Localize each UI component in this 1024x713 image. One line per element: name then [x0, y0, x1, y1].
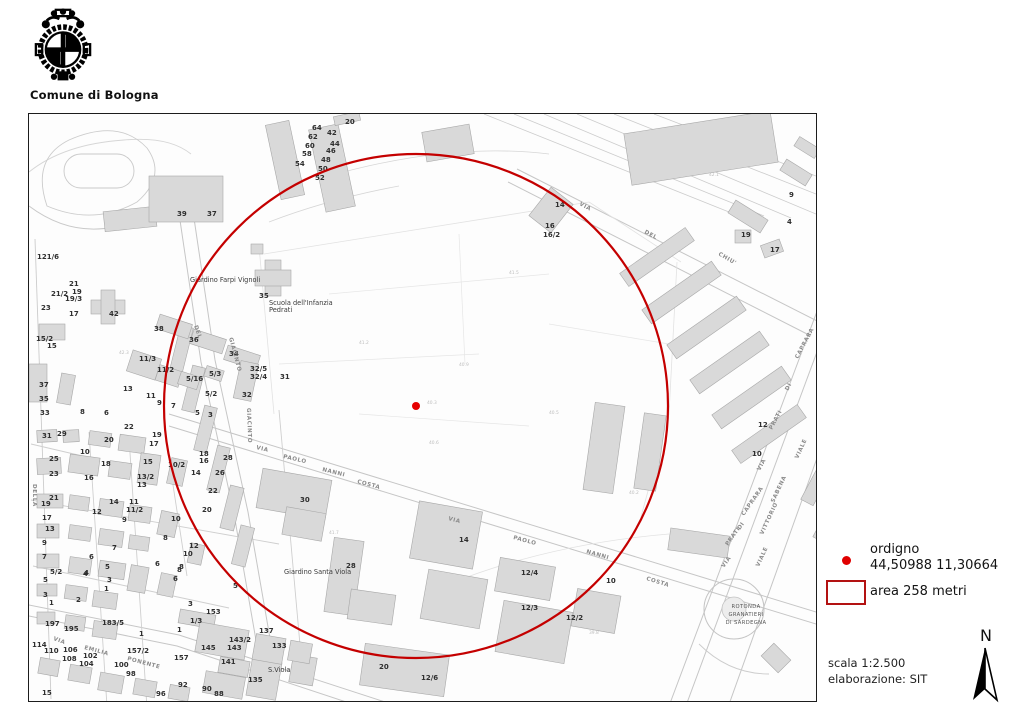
- map-label: 19: [41, 500, 51, 508]
- map-label: 10: [606, 577, 616, 585]
- map-label: 41.7: [329, 530, 339, 536]
- elaboration-text: elaborazione: SIT: [828, 671, 927, 687]
- scale-block: scala 1:2.500 elaborazione: SIT: [828, 655, 927, 687]
- map-label: 58: [302, 150, 312, 158]
- map-label: 40.9: [459, 362, 469, 368]
- map-label: 1: [49, 599, 54, 607]
- legend-point-label: ordigno: [870, 542, 998, 558]
- map-label: 29: [57, 430, 67, 438]
- map-label: 18: [101, 460, 111, 468]
- map-label: Pedrati: [269, 306, 292, 314]
- map-label: 108: [62, 655, 77, 663]
- map-label: 5/3: [209, 370, 221, 378]
- map-label: 22: [124, 423, 134, 431]
- map-label: 31: [280, 373, 290, 381]
- map-label: 5: [195, 409, 200, 417]
- map-label: 12: [189, 542, 199, 550]
- map-label: 5/16: [186, 375, 203, 383]
- map-label: 12/6: [421, 674, 438, 682]
- map-label: 11/2: [126, 506, 143, 514]
- map-label: 16: [545, 222, 555, 230]
- map-label: 62: [308, 133, 318, 141]
- map-label: 10: [80, 448, 90, 456]
- map-label: 16: [84, 474, 94, 482]
- north-letter: N: [964, 628, 1008, 644]
- map-label: 90: [202, 685, 212, 693]
- map-label: 7: [171, 402, 176, 410]
- map-label: 110: [44, 647, 59, 655]
- map-label: 32/5: [250, 365, 267, 373]
- map-label: 5: [43, 576, 48, 584]
- map-label: 17: [149, 440, 159, 448]
- map-label: 135: [248, 676, 263, 684]
- map-label: 13/2: [137, 473, 154, 481]
- scale-text: scala 1:2.500: [828, 655, 927, 671]
- map-label: 14: [191, 469, 201, 477]
- map-label: 3: [188, 600, 193, 608]
- map-label: 41.2: [359, 340, 369, 346]
- map-label: 39: [177, 210, 187, 218]
- map-label: 5/2: [205, 390, 217, 398]
- map-label: 157: [174, 654, 189, 662]
- map-label: 31: [42, 432, 52, 440]
- map-label: 35: [259, 292, 269, 300]
- map-label: 20: [379, 663, 389, 671]
- map-label: 8: [163, 534, 168, 542]
- map-label: 33: [40, 409, 50, 417]
- map-label: 141: [221, 658, 236, 666]
- map-label: 10: [183, 550, 193, 558]
- map-label: 14: [459, 536, 469, 544]
- map-label: 16/2: [543, 231, 560, 239]
- map-label: S.Viola: [268, 666, 290, 674]
- map-label: 23: [49, 470, 59, 478]
- map-label: 1/3: [190, 617, 202, 625]
- map-label: 2: [76, 596, 81, 604]
- map-label: 100: [114, 661, 129, 669]
- map-label: 1: [177, 626, 182, 634]
- map-frame: 2064426244604658485450523937141616/29419…: [28, 113, 817, 702]
- map-label: Giardino Santa Viola: [284, 568, 351, 576]
- map-label: 12/3: [521, 604, 538, 612]
- map-label: 9: [122, 516, 127, 524]
- map-label: 157/2: [127, 647, 149, 655]
- legend-point-swatch-icon: [842, 556, 851, 565]
- map-label: 48: [321, 156, 331, 164]
- map-label: 11: [129, 498, 139, 506]
- legend-area-swatch-icon: [826, 580, 866, 605]
- legend-point-text: ordigno 44,50988 11,30664: [870, 542, 998, 574]
- map-label: 1: [139, 630, 144, 638]
- map-label: 14: [109, 498, 119, 506]
- map-label: 197: [45, 620, 60, 628]
- comune-di-bologna-crest-icon: [34, 8, 92, 84]
- map-label: 40.2: [629, 490, 639, 496]
- map-label: 13: [45, 525, 55, 533]
- map-label: 64: [312, 124, 322, 132]
- map-label: 98: [126, 670, 136, 678]
- map-label: 6: [89, 553, 94, 561]
- map-label: 38: [154, 325, 164, 333]
- map-label: 32: [242, 391, 252, 399]
- map-label: 13: [137, 481, 147, 489]
- map-label: 54: [295, 160, 305, 168]
- map-label: 46: [326, 147, 336, 155]
- ordnance-point: [412, 402, 420, 410]
- map-label: 3: [208, 411, 213, 419]
- map-label: 12/4: [521, 569, 538, 577]
- map-label: 6: [155, 560, 160, 568]
- org-name: Comune di Bologna: [30, 88, 230, 102]
- map-label: 4: [787, 218, 792, 226]
- map-label: 6: [173, 575, 178, 583]
- map-label: 20: [345, 118, 355, 126]
- map-label: 42: [109, 310, 119, 318]
- map-label: 32/4: [250, 373, 267, 381]
- map-label: 19: [741, 231, 751, 239]
- map-label: 9: [157, 399, 162, 407]
- map-label: 9: [42, 539, 47, 547]
- map-label: 28: [223, 454, 233, 462]
- map-label: 37: [207, 210, 217, 218]
- map-label: 12/2: [566, 614, 583, 622]
- map-label: 21: [69, 280, 79, 288]
- map-label: 5/2: [50, 568, 62, 576]
- north-indicator: N: [962, 628, 1008, 708]
- map-label: 6: [104, 409, 109, 417]
- map-label: 11/3: [139, 355, 156, 363]
- map-label: 104: [79, 660, 94, 668]
- map-label: 42: [327, 129, 337, 137]
- map-label: 183/5: [102, 619, 124, 627]
- map-label: ROTONDA: [731, 604, 760, 610]
- map-label: 23: [41, 304, 51, 312]
- map-label: 10: [171, 515, 181, 523]
- map-label: 60: [305, 142, 315, 150]
- map-label: 20: [104, 436, 114, 444]
- map-label: 22: [208, 487, 218, 495]
- map-label: 133: [272, 642, 287, 650]
- map-label: 11: [146, 392, 156, 400]
- map-label: 13: [123, 385, 133, 393]
- map-label: 5: [105, 563, 110, 571]
- map-label: 19/3: [65, 295, 82, 303]
- north-arrow-icon: [965, 646, 1005, 704]
- map-label: 26: [215, 469, 225, 477]
- map-label: 9: [789, 191, 794, 199]
- map-label: 145: [201, 644, 216, 652]
- map-label: 3: [43, 591, 48, 599]
- map-label: 12: [92, 508, 102, 516]
- map-label: 17: [42, 514, 52, 522]
- map-label: 10: [752, 450, 762, 458]
- map-label: DI SARDEGNA: [726, 620, 767, 626]
- map-label: 35: [39, 395, 49, 403]
- map-label: 8: [177, 566, 182, 574]
- page: Comune di Bologna 2064426244604658485450…: [0, 0, 1024, 713]
- map-label: 106: [63, 646, 78, 654]
- map-label: 143/2: [229, 636, 251, 644]
- map-label: 4: [83, 570, 88, 578]
- map-label: 40.5: [549, 410, 559, 416]
- map-label: 15: [47, 342, 57, 350]
- map-label: 40.6: [429, 440, 439, 446]
- map-label: 92: [178, 681, 188, 689]
- map-label: 96: [156, 690, 166, 698]
- map-label: 40.3: [427, 400, 437, 406]
- map-label: 20: [202, 506, 212, 514]
- map-label: 42.1: [709, 172, 719, 178]
- map-label: 25: [49, 455, 59, 463]
- map-label: 8: [80, 408, 85, 416]
- map-label: 12: [758, 421, 768, 429]
- map-label: 37: [39, 381, 49, 389]
- map-label: 15: [42, 689, 52, 697]
- map-label: 42.3: [119, 350, 129, 356]
- map-label: 1: [104, 585, 109, 593]
- legend-point-coords: 44,50988 11,30664: [870, 558, 998, 574]
- legend-area-label: area 258 metri: [870, 584, 967, 599]
- map-label: 88: [214, 690, 224, 698]
- map-label: 7: [42, 553, 47, 561]
- map-label: 17: [69, 310, 79, 318]
- map-label: GRANATIERI: [728, 612, 763, 618]
- map-label: 15: [143, 458, 153, 466]
- map-label: 121/6: [37, 253, 59, 261]
- map-label: GIACINTO: [245, 408, 252, 443]
- map-label: 143: [227, 644, 242, 652]
- map-label: DELLA: [31, 484, 37, 507]
- map-label: 137: [259, 627, 274, 635]
- brand-block: Comune di Bologna: [30, 8, 230, 102]
- map-label: 41.5: [509, 270, 519, 276]
- map-label: 7: [112, 544, 117, 552]
- map-canvas[interactable]: 2064426244604658485450523937141616/29419…: [29, 114, 816, 701]
- map-label: 19: [152, 431, 162, 439]
- map-label: 16: [199, 457, 209, 465]
- map-label: 30: [300, 496, 310, 504]
- map-label: 195: [64, 625, 79, 633]
- map-label: 17: [770, 246, 780, 254]
- map-label: 39.8: [589, 630, 599, 636]
- map-label: 3: [107, 576, 112, 584]
- map-label: 153: [206, 608, 221, 616]
